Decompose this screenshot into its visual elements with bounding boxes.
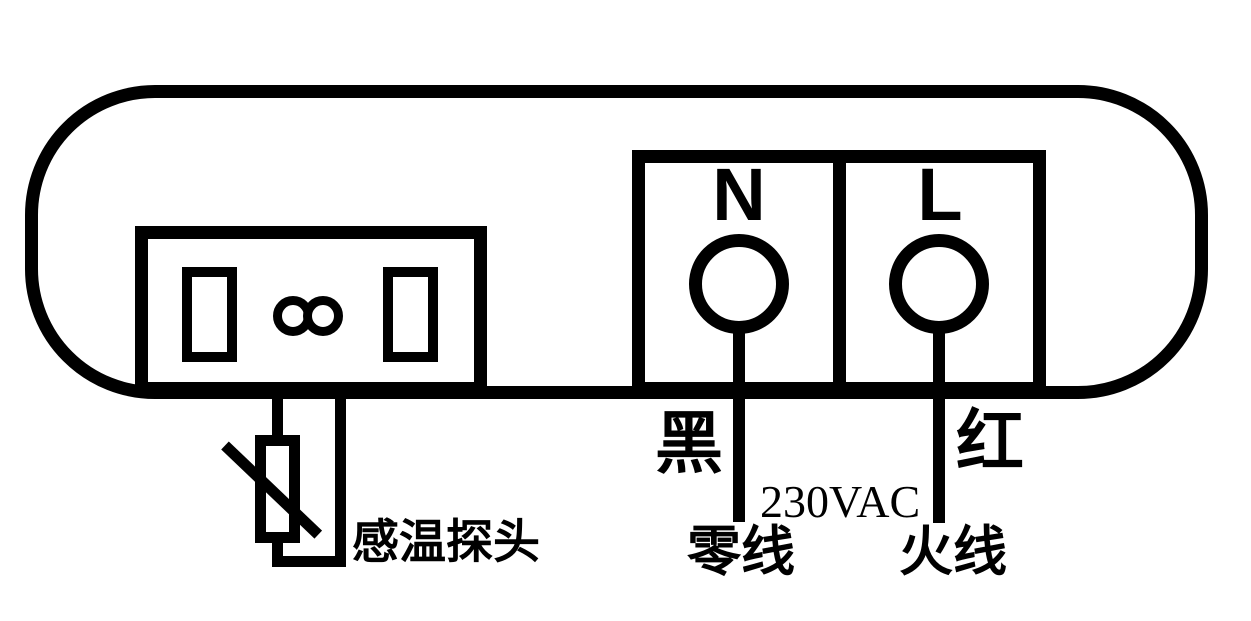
probe-wire-top-stub [272, 393, 283, 439]
terminal-letter-l: L [890, 158, 990, 232]
wire-name-label-neutral: 零线 [687, 525, 795, 579]
sensor-probe-label: 感温探头 [352, 518, 540, 565]
probe-wire-return [335, 390, 346, 567]
wire-neutral [733, 330, 745, 522]
wire-live [933, 330, 945, 523]
terminal-letter-n: N [689, 158, 789, 232]
sensor-slot-left [182, 267, 237, 362]
wire-color-label-black: 黑 [655, 410, 723, 478]
infinity-icon-right-circle [303, 296, 343, 336]
terminal-screw-l [889, 234, 989, 334]
terminal-screw-n [689, 234, 789, 334]
voltage-label: 230VAC [760, 479, 920, 525]
wiring-diagram: N L 黑 红 230VAC 零线 火线 感温探头 [0, 0, 1251, 621]
wire-name-label-live: 火线 [899, 525, 1007, 579]
wire-color-label-red: 红 [956, 408, 1024, 476]
sensor-slot-right [383, 267, 438, 362]
